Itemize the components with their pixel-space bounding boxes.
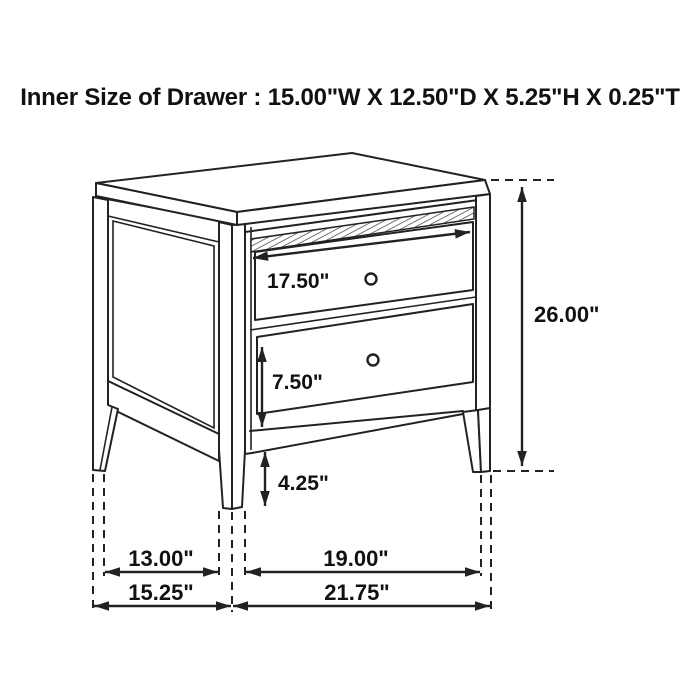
front-right-leg-front-face	[478, 408, 490, 472]
arrowhead-icon	[203, 567, 218, 577]
side-panel	[93, 197, 219, 471]
dim-overall-width-label: 21.75"	[324, 580, 389, 605]
dim-overall-height-label: 26.00"	[534, 302, 599, 327]
arrowhead-icon	[246, 567, 261, 577]
dim-overall-width: 21.75"	[233, 580, 490, 611]
dim-overall-height: 26.00"	[517, 187, 599, 466]
front-face	[245, 192, 478, 454]
arrowhead-icon	[260, 452, 270, 467]
arrowhead-icon	[216, 601, 231, 611]
dimension-diagram-page: Inner Size of Drawer : 15.00"W X 12.50"D…	[0, 0, 700, 700]
dim-inner-depth: 13.00"	[105, 546, 218, 577]
dim-leg-height-label: 4.25"	[278, 472, 329, 495]
nightstand-drawing: 17.50" 26.00" 7.50" 4.25" 13.00"	[0, 0, 700, 700]
arrowhead-icon	[517, 451, 527, 466]
dim-drawer-width-label: 17.50"	[267, 270, 330, 293]
arrowhead-icon	[465, 567, 480, 577]
dim-inner-width-label: 19.00"	[323, 546, 388, 571]
dim-overall-depth-label: 15.25"	[128, 580, 193, 605]
arrowhead-icon	[105, 567, 120, 577]
front-left-leg	[219, 222, 245, 509]
front-left-leg-front-face	[232, 224, 245, 509]
arrowhead-icon	[517, 187, 527, 202]
dim-lower-drawer-height-label: 7.50"	[272, 371, 323, 394]
drawer-top-knob-icon	[366, 274, 377, 285]
arrowhead-icon	[233, 601, 248, 611]
dim-inner-width: 19.00"	[246, 546, 480, 577]
arrowhead-icon	[475, 601, 490, 611]
arrowhead-icon	[94, 601, 109, 611]
dim-inner-depth-label: 13.00"	[128, 546, 193, 571]
dim-leg-height: 4.25"	[260, 452, 329, 506]
dim-overall-depth: 15.25"	[94, 580, 231, 611]
drawer-bottom-knob-icon	[368, 355, 379, 366]
front-left-leg-side-face	[219, 222, 232, 509]
front-right-post	[476, 194, 490, 432]
arrowhead-icon	[260, 491, 270, 506]
